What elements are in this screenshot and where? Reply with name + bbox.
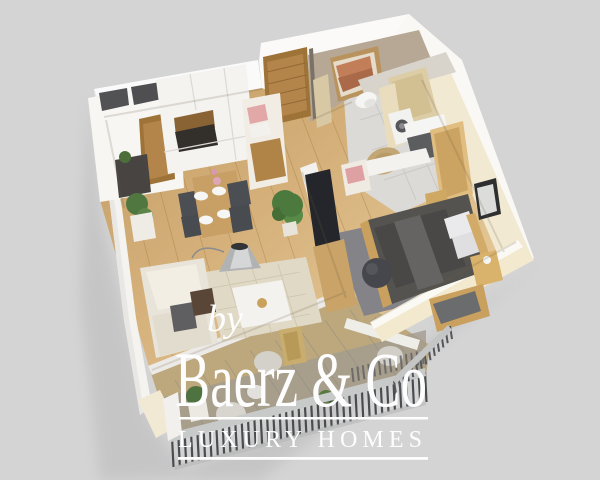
svg-text:by: by [207,298,243,340]
svg-text:Baerz & Co: Baerz & Co [175,336,427,423]
